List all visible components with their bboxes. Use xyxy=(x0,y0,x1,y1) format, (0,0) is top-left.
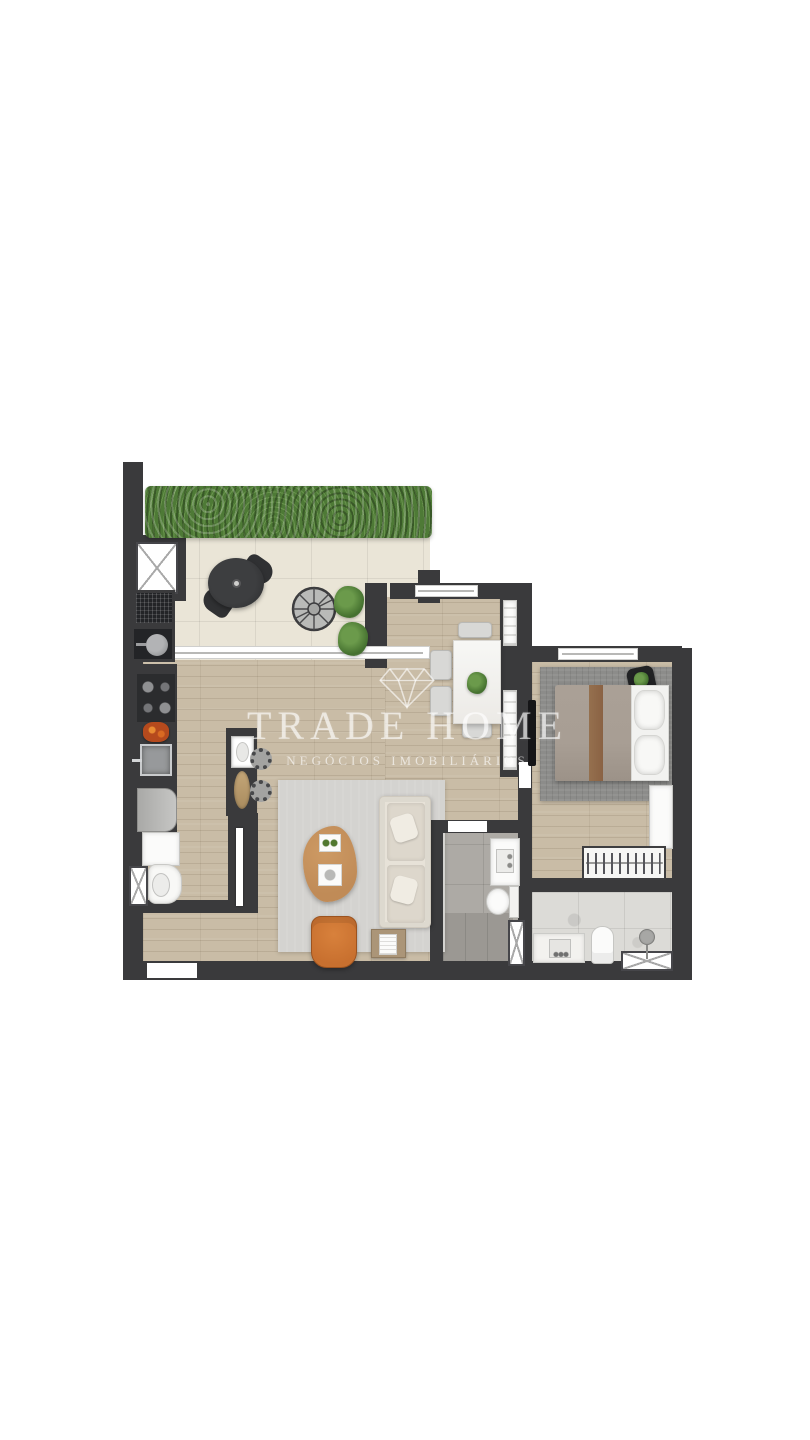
cooktop xyxy=(137,674,175,722)
wc-toilet-bowl xyxy=(152,873,170,897)
bathroom-toilet xyxy=(486,886,519,918)
side-table xyxy=(371,929,406,958)
cutting-board xyxy=(143,722,169,742)
bar-stool-1 xyxy=(250,748,272,770)
wc-pocket-door xyxy=(236,828,243,906)
sofa xyxy=(379,796,431,928)
kitchen-sink xyxy=(140,744,172,776)
side-table-book xyxy=(379,934,397,955)
terrace-table xyxy=(208,558,264,608)
bar-stool-2 xyxy=(250,780,272,802)
terrace-plant-2 xyxy=(338,622,368,656)
terrace-table-center xyxy=(232,579,241,588)
sideboard-upper xyxy=(503,600,517,646)
hedge-planter xyxy=(145,486,432,538)
bedroom-closet xyxy=(649,785,673,849)
elevator-shaft xyxy=(136,542,178,594)
dining-chair-left-2 xyxy=(430,686,452,716)
shower-head-arm xyxy=(646,945,648,959)
wc-toilet xyxy=(148,864,182,904)
wall-right-outer xyxy=(672,648,692,964)
shower-head xyxy=(639,929,655,945)
dining-chair-left-1 xyxy=(430,650,452,680)
wall-bedroom-bath xyxy=(532,878,672,892)
bathroom-vanity xyxy=(490,838,520,886)
wc-shaft xyxy=(129,866,148,906)
terrace-sink xyxy=(131,626,175,662)
suite-vanity-sink xyxy=(549,939,571,958)
island-sink-bowl xyxy=(236,742,249,762)
tv-panel xyxy=(528,700,536,766)
terrace-sliding-door xyxy=(162,646,430,659)
coffee-table-tray-1 xyxy=(319,834,341,852)
bathroom-shaft xyxy=(508,920,525,966)
suite-toilet xyxy=(591,926,614,964)
floor-plan-page: TRADE HOME NEGÓCIOS IMOBILIÁRIOS xyxy=(0,0,810,1440)
terrace-sink-faucet xyxy=(136,643,146,646)
bathroom-toilet-tank xyxy=(509,886,519,918)
kitchen-faucet xyxy=(132,759,142,762)
sideboard-lower xyxy=(503,690,517,770)
bathroom-door-opening xyxy=(448,821,487,832)
bed xyxy=(555,685,669,781)
refrigerator xyxy=(137,788,177,832)
bed-pillow-1 xyxy=(634,690,665,730)
washing-machine xyxy=(142,832,180,866)
wardrobe-rail xyxy=(582,846,666,880)
coffee-table xyxy=(303,826,357,902)
shower-floor xyxy=(443,913,513,965)
terrace-plant-1 xyxy=(334,586,364,618)
entry-door xyxy=(415,585,478,597)
barbecue-grill xyxy=(133,590,175,626)
bed-runner xyxy=(589,685,603,781)
wall-bathroom-left xyxy=(430,820,443,965)
wall-wc-partition xyxy=(228,813,258,913)
dining-centerpiece-plant xyxy=(467,672,487,694)
bathroom-vanity-sink xyxy=(496,849,514,873)
floor-plan: TRADE HOME NEGÓCIOS IMOBILIÁRIOS xyxy=(0,0,810,1440)
papasan-chair xyxy=(290,585,338,633)
terrace-sink-bowl xyxy=(146,634,168,656)
bathroom-toilet-bowl xyxy=(486,888,510,915)
bedroom-window xyxy=(558,648,638,660)
dining-chair-top xyxy=(458,622,492,638)
bed-pillow-2 xyxy=(634,735,665,775)
suite-vanity xyxy=(533,933,585,963)
dining-chair-bottom xyxy=(462,722,492,738)
island-tray xyxy=(234,771,250,809)
bottom-door-opening xyxy=(147,963,197,978)
armchair xyxy=(311,916,357,968)
coffee-table-tray-2 xyxy=(318,864,342,886)
